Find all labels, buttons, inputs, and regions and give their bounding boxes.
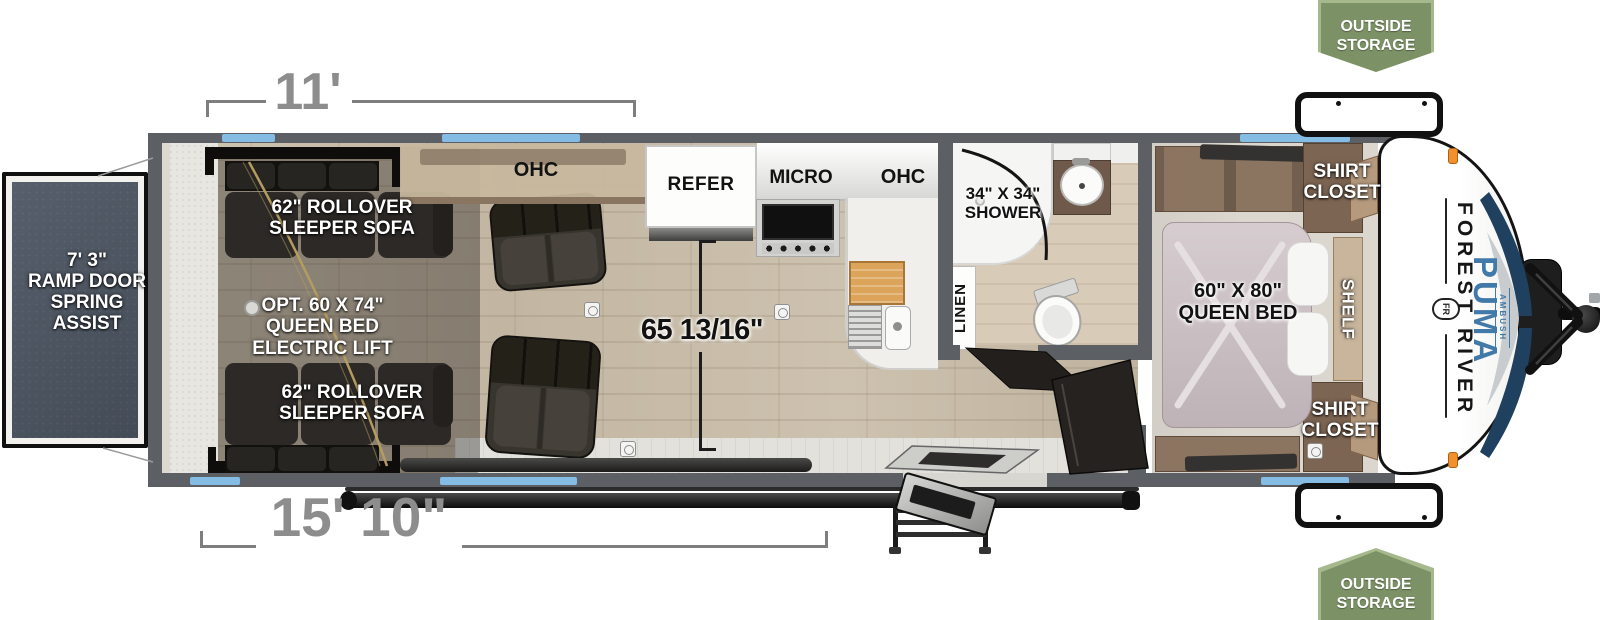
front-shelf: SHELF (1333, 237, 1363, 381)
shirt-closet-top-label: SHIRT CLOSET (1296, 161, 1388, 204)
width-dim-tick-top (699, 240, 716, 243)
queen-bed-option-label: OPT. 60 X 74" QUEEN BED ELECTRIC LIFT (235, 295, 410, 359)
brand-flourish-bottom (1445, 334, 1447, 418)
garage-length-dimension: 11' (262, 66, 354, 118)
ramp-hinge-line-bottom (103, 448, 153, 462)
garage-dim-tick-left (206, 100, 209, 117)
recliner-back (491, 336, 600, 389)
awning-rail-cap-right (1122, 491, 1140, 510)
outside-storage-top-label: OUTSIDE STORAGE (1333, 17, 1419, 55)
recliner-chair-top (488, 191, 608, 292)
wall-bedroom-stub (1128, 425, 1146, 473)
floor-vent (620, 441, 636, 457)
garage-track-top-stub-left (205, 147, 214, 175)
brand-flourish-top (1445, 198, 1447, 284)
bedroom-tv-bottom (1185, 454, 1297, 472)
outside-storage-badge-top: OUTSIDE STORAGE (1318, 0, 1434, 72)
window-bottom-1 (190, 477, 240, 485)
interior-width-dimension: 65 13/16" (618, 314, 786, 346)
outside-storage-badge-bottom-inner: OUTSIDE STORAGE (1321, 551, 1431, 620)
floorplan-canvas: LINEN SHELF (0, 0, 1600, 620)
cutting-board (849, 261, 905, 305)
window-bottom-2 (440, 477, 577, 485)
kitchen-counter-lip (400, 197, 645, 204)
vanity-faucet (1072, 158, 1090, 165)
recliner-seat (493, 385, 590, 453)
front-storage-hatch-bottom (1295, 483, 1443, 528)
linen-label: LINEN (952, 283, 969, 333)
sink-faucet (893, 322, 902, 331)
wall-bedroom (1138, 143, 1152, 360)
ohc-right-label: OHC (872, 166, 934, 189)
hitch-jack-handle (1589, 293, 1600, 303)
floor-vent (1307, 443, 1323, 459)
garage-dim-tick-right (633, 100, 636, 117)
cargo-dim-line-left (200, 545, 256, 548)
width-dim-tick-bottom (699, 448, 716, 451)
window-top-2 (442, 134, 580, 142)
cargo-length-dimension: 15' 10" (250, 490, 468, 545)
cargo-dim-tick-left (200, 531, 203, 548)
floor-vent (584, 302, 600, 318)
garage-dim-line-left (206, 100, 266, 103)
hatch-rivet (1422, 101, 1427, 106)
outside-storage-bottom-label: OUTSIDE STORAGE (1333, 575, 1419, 613)
front-storage-hatch-top (1295, 92, 1443, 137)
wall-rear-trim (162, 143, 170, 473)
sofa-top-label: 62" ROLLOVER SLEEPER SOFA (252, 197, 432, 240)
vanity-sink-drain (1079, 183, 1085, 189)
shower-label: 34" X 34" SHOWER (948, 184, 1058, 222)
cargo-dim-tick-right (825, 531, 828, 548)
propane-cover (1518, 259, 1562, 365)
wall-bath-bottom-left (938, 345, 960, 360)
window-top-1 (222, 134, 275, 142)
sofa-bottom-label: 62" ROLLOVER SLEEPER SOFA (262, 382, 442, 425)
sink-grate (848, 305, 882, 349)
wall-bath-bottom-right (1038, 345, 1152, 360)
ohc-left-label: OHC (505, 159, 567, 182)
refer-label: REFER (645, 174, 757, 196)
shelf-label: SHELF (1338, 279, 1357, 340)
range-knobs (762, 243, 834, 254)
range-cooktop (762, 204, 834, 240)
hatch-rivet (1422, 515, 1427, 520)
hatch-rivet (1336, 515, 1341, 520)
width-dim-line-upper (699, 240, 702, 314)
garage-track-bottom-stub-left (208, 447, 216, 473)
cargo-floor-strip (162, 143, 218, 473)
entry-steps-tread-3 (896, 532, 986, 537)
shirt-closet-bottom-label: SHIRT CLOSET (1294, 399, 1386, 442)
hatch-rivet (1336, 101, 1341, 106)
wall-top (148, 133, 1395, 143)
recliner-seat (500, 231, 599, 287)
entry-steps-foot-left (889, 547, 901, 554)
width-dim-line-lower (699, 352, 702, 450)
marker-light-bottom (1448, 452, 1458, 468)
ramp-door-label: 7' 3" RAMP DOOR SPRING ASSIST (14, 250, 160, 334)
outside-storage-badge-bottom: OUTSIDE STORAGE (1318, 548, 1434, 620)
entry-steps-foot-right (979, 547, 991, 554)
entry-steps-platform-tread (909, 484, 975, 519)
wall-bath-left (938, 143, 953, 360)
queen-bed-label: 60" X 80" QUEEN BED (1168, 280, 1308, 325)
marker-light-top (1448, 148, 1458, 164)
garage-dim-line-right (352, 100, 636, 103)
recliner-chair-bottom (484, 334, 602, 459)
brand-series: AMBUSH (1495, 288, 1510, 348)
micro-label: MICRO (757, 167, 845, 189)
hitch-coupler (1572, 305, 1600, 333)
outside-storage-badge-top-inner: OUTSIDE STORAGE (1321, 3, 1431, 79)
floor-track-bar (400, 458, 812, 472)
cargo-dim-line-right (462, 545, 828, 548)
